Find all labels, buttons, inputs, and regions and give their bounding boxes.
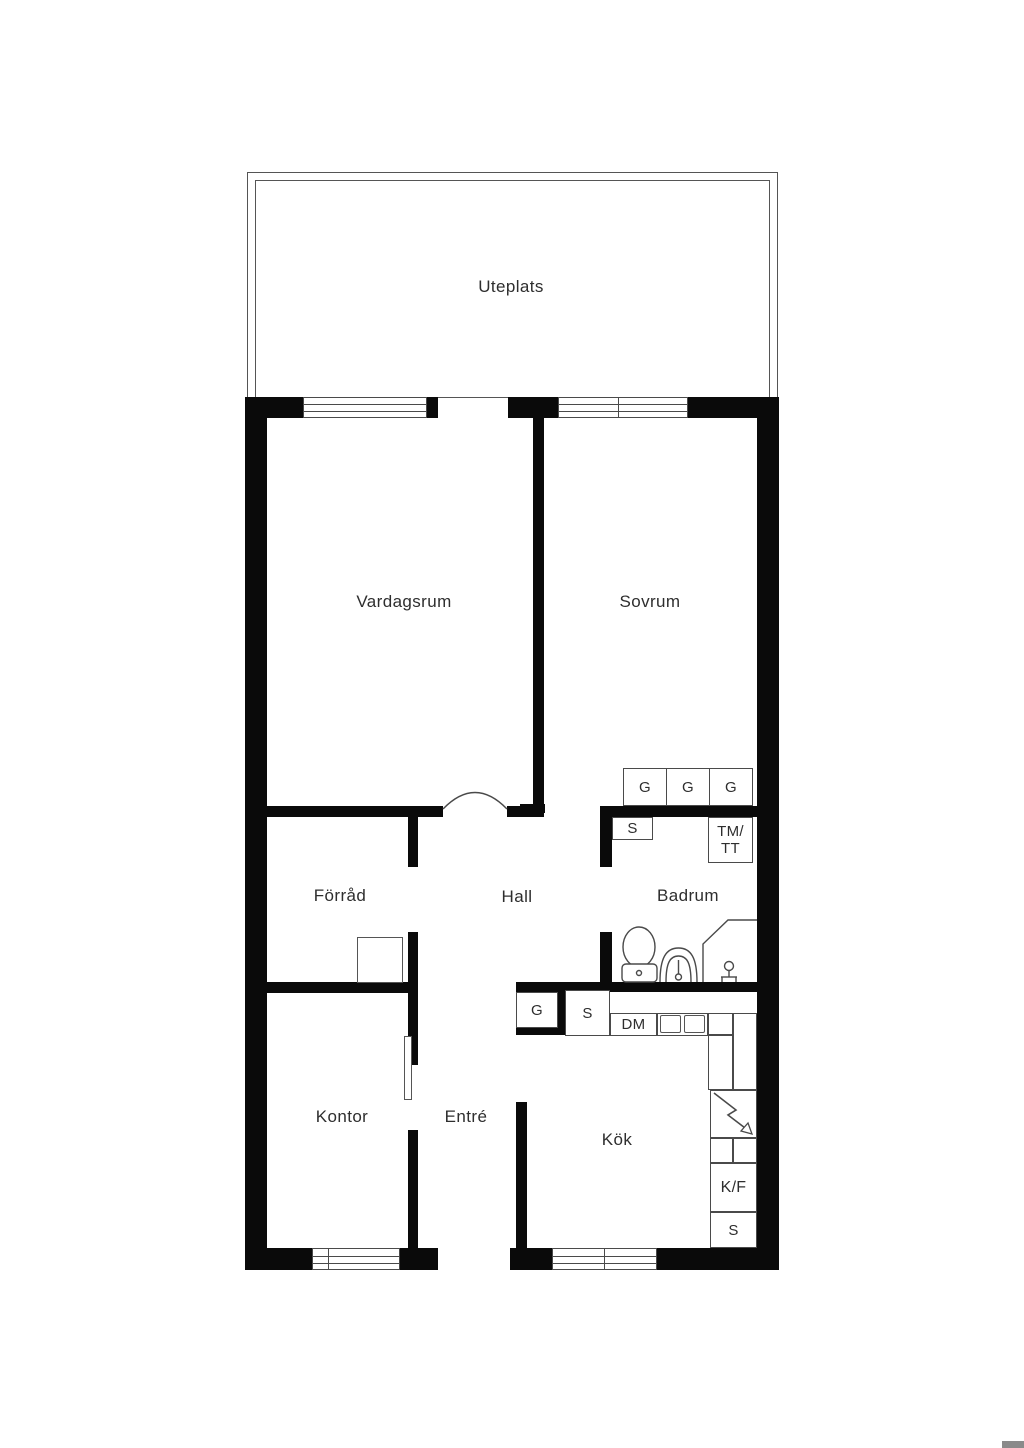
shower-corner-wall [703,920,757,982]
counter-cell-2 [708,1035,733,1090]
room-label-hall: Hall [502,887,533,907]
wall-hall-north-left [267,806,443,817]
wardrobe-2: G [666,768,710,806]
window-vardagsrum [303,397,427,418]
window-kok [552,1248,657,1270]
window-sovrum [558,397,688,418]
stove [657,1013,708,1036]
toilet-icon [622,927,657,982]
hob-burner-1 [660,1015,681,1033]
wardrobe-1-label: G [639,779,651,796]
dishwasher: DM [610,1013,657,1036]
wardrobe-2-label: G [682,779,694,796]
wall-bottom-3 [510,1248,552,1270]
counter-cell-5 [733,1138,757,1163]
wall-bottom-2 [400,1248,438,1270]
wall-left [245,397,267,1270]
pantry-kok-label: S [728,1222,738,1239]
wall-badrum-west-upper [600,817,612,867]
room-label-forrad: Förråd [314,886,366,906]
room-label-uteplats: Uteplats [478,277,544,297]
shower-mixer-icon [721,962,737,983]
wall-forrad-east-upper [408,817,418,867]
pantry-kok: S [710,1212,757,1248]
room-label-vardagsrum: Vardagsrum [356,592,451,612]
dishwasher-label: DM [622,1016,646,1033]
wardrobe-3-label: G [725,779,737,796]
room-label-kontor: Kontor [316,1107,369,1127]
wall-hall-closet-south [516,1028,565,1035]
room-label-sovrum: Sovrum [620,592,681,612]
counter-cell-3 [733,1013,757,1090]
closet-sovrum-label: S [627,820,637,837]
wall-forrad-kontor [267,982,418,993]
wall-top-2 [427,397,438,418]
washer-dryer: TM/ TT [708,817,753,863]
wardrobe-1: G [623,768,667,806]
wall-sovrum-badrum [600,806,757,817]
floor-plan: Uteplats G G G S [0,0,1024,1448]
wall-right [757,397,779,1270]
room-label-entre: Entré [445,1107,488,1127]
closet-hall-label: S [582,1005,592,1022]
wall-bottom-4 [657,1248,779,1270]
watermark-corner [1002,1441,1024,1448]
forrad-cabinet [357,937,403,983]
window-kontor [312,1248,400,1270]
fridge-freezer-label: K/F [721,1179,747,1197]
washer-dryer-label-2: TT [721,840,740,857]
closet-hall: S [565,990,610,1036]
vardagsrum-door-arc [443,793,507,810]
fridge-freezer: K/F [710,1163,757,1212]
wall-hall-closet-east [558,992,565,1028]
wardrobe-hall-label: G [531,1002,543,1019]
wall-bottom-1 [245,1248,312,1270]
wall-badrum-kok [516,982,757,992]
counter-cell-1 [708,1013,733,1035]
wall-top-3 [508,397,558,418]
wall-vardagsrum-sovrum [533,418,544,813]
wardrobe-3: G [709,768,753,806]
sink-icon [660,948,697,982]
wall-kontor-east [408,1130,418,1248]
wall-badrum-west-lower [600,932,612,982]
wardrobe-hall: G [516,992,558,1028]
washer-dryer-label-1: TM/ [717,823,744,840]
electric-stove-box [710,1090,757,1138]
room-label-kok: Kök [602,1130,633,1150]
closet-sovrum: S [612,817,653,840]
wall-hall-north-mid [507,806,544,817]
room-label-badrum: Badrum [657,886,719,906]
kontor-door-leaf [404,1036,412,1100]
hob-burner-2 [684,1015,705,1033]
wall-entre-kok [516,1102,527,1248]
counter-cell-4 [710,1138,733,1163]
